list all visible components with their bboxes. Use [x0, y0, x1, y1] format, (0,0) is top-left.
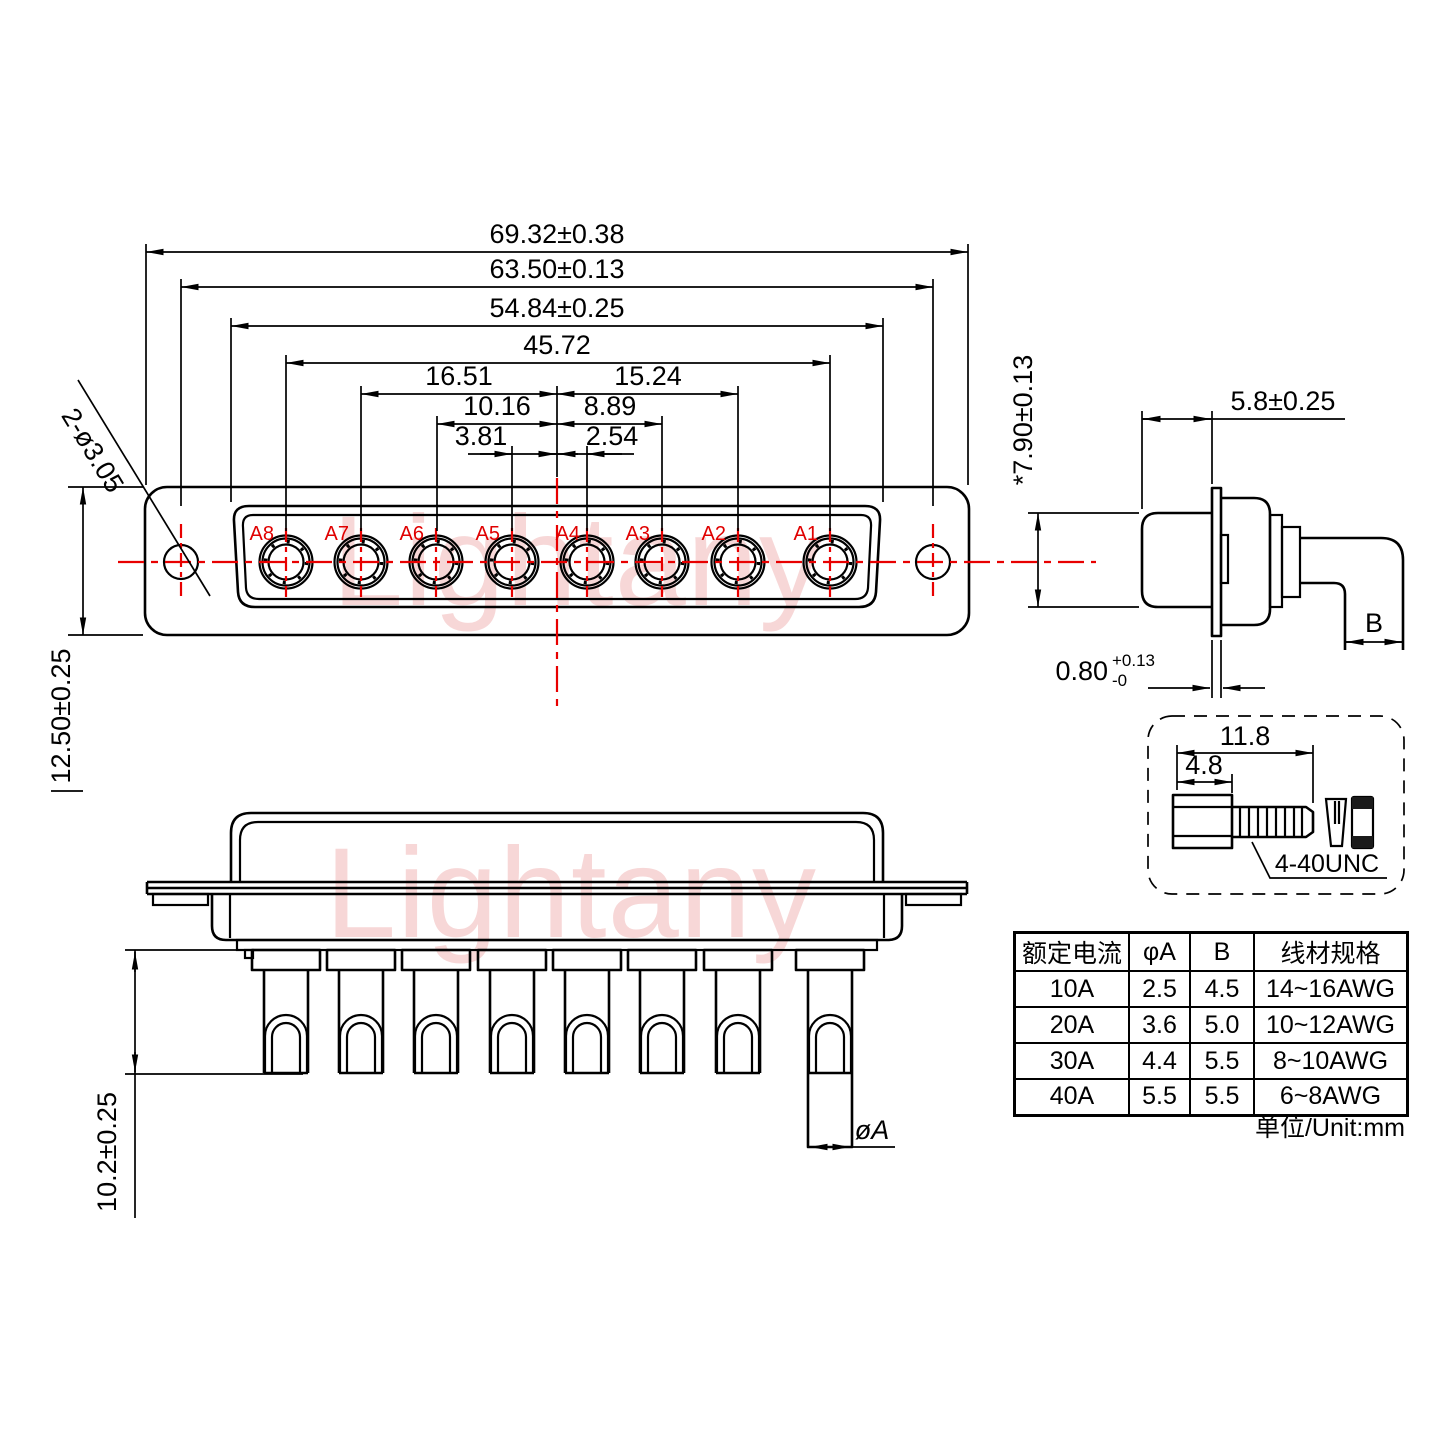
dim-flange-thickness: 0.80: [1055, 656, 1108, 686]
screw-shank: [1232, 807, 1313, 837]
dim-mount-holes: 2-ø3.05: [56, 403, 130, 498]
bottom-pin-a1: [796, 950, 864, 1073]
table-row: 10A 2.5 4.5 14~16AWG: [1015, 971, 1408, 1007]
pin-label-a5: A5: [476, 523, 500, 545]
dim-screw-length: 11.8: [1220, 721, 1271, 751]
technical-drawing-page: Lightany Lightany A8 A7 A6: [0, 0, 1440, 1440]
bottom-pin-a4: [553, 950, 621, 1073]
side-mating-body: [1142, 513, 1212, 607]
dim-cutout-width: 54.84±0.25: [490, 293, 625, 323]
table-cell: 30A: [1015, 1043, 1130, 1079]
pin-label-a6: A6: [400, 523, 424, 545]
dim-a5-center: 3.81: [455, 421, 508, 451]
header-b: B: [1190, 933, 1254, 972]
table-row: 20A 3.6 5.0 10~12AWG: [1015, 1007, 1408, 1043]
dim-wire-b: B: [1365, 608, 1383, 638]
bottom-pin-a3: [628, 950, 696, 1073]
side-view: 5.8±0.25 *7.90±0.13 0.80 +0.13 -0 B: [1008, 355, 1403, 698]
screw-end-band-bottom: [1352, 836, 1373, 848]
unit-note: 单位/Unit:mm: [1255, 1108, 1405, 1144]
dim-screw-head: 4.8: [1185, 750, 1223, 780]
side-insert-edge: [1221, 535, 1228, 583]
screw-head-facets: [1173, 807, 1232, 836]
table-cell: 20A: [1015, 1007, 1130, 1043]
bottom-dimension-lines: [135, 950, 895, 1218]
pin-label-a4: A4: [556, 523, 580, 545]
dim-pin-diameter: øA: [855, 1115, 890, 1145]
screw-thread-label: 4-40UNC: [1275, 850, 1379, 878]
dim-face-height: *7.90±0.13: [1008, 355, 1038, 485]
bottom-pin-a5: [478, 950, 546, 1073]
dim-flange-height: 12.50±0.25: [46, 649, 76, 784]
pin-label-a8: A8: [250, 523, 274, 545]
side-step2: [1282, 527, 1300, 597]
dim-contact-span: 45.72: [523, 330, 591, 360]
dim-a4-center: 2.54: [586, 421, 639, 451]
bottom-pin-a7: [327, 950, 395, 1073]
bottom-tab-right: [906, 894, 961, 905]
bottom-tab-left: [153, 894, 208, 905]
screw-slot-wedge: [1326, 799, 1346, 846]
table-cell: 5.5: [1129, 1079, 1190, 1115]
bottom-pin-a1-extension: [808, 1073, 852, 1147]
table-row: 30A 4.4 5.5 8~10AWG: [1015, 1043, 1408, 1079]
bottom-pin-a8: [252, 950, 320, 1073]
pin-label-a1: A1: [794, 523, 818, 545]
screw-head: [1173, 795, 1232, 848]
dim-flange-tol-upper: +0.13: [1112, 651, 1155, 670]
bottom-pin-a6: [402, 950, 470, 1073]
pin-label-a7: A7: [325, 523, 349, 545]
table-cell: 40A: [1015, 1079, 1130, 1115]
side-wire-outer: [1300, 538, 1403, 650]
pin-label-a2: A2: [702, 523, 726, 545]
screw-threads: [1240, 808, 1302, 836]
front-view: A8 A7 A6 A5 A4 A3 A2 A1: [46, 219, 1096, 791]
bottom-extension-lines: [125, 950, 303, 1074]
dim-a7-center: 16.51: [425, 361, 493, 391]
table-cell: 5.5: [1190, 1079, 1254, 1115]
dim-flange-tol-lower: -0: [1112, 671, 1127, 690]
table-cell: 3.6: [1129, 1007, 1190, 1043]
table-cell: 4.5: [1190, 971, 1254, 1007]
dim-a2-center: 15.24: [614, 361, 682, 391]
dim-a3-center: 8.89: [584, 391, 637, 421]
screw-detail: 11.8 4.8 4-40UNC: [1148, 716, 1404, 894]
table-cell: 5.5: [1190, 1043, 1254, 1079]
spec-table: 额定电流 φA B 线材规格 10A 2.5 4.5 14~16AWG 20A …: [1013, 931, 1409, 1117]
side-step1: [1270, 515, 1282, 607]
side-wire-inner: [1300, 583, 1345, 650]
header-rated-current: 额定电流: [1015, 933, 1130, 972]
dim-a6-center: 10.16: [463, 391, 531, 421]
drawing-canvas: Lightany Lightany A8 A7 A6: [0, 0, 1440, 1440]
table-cell: 10~12AWG: [1254, 1007, 1408, 1043]
dim-overall-width: 69.32±0.38: [490, 219, 625, 249]
pin-label-a3: A3: [626, 523, 650, 545]
table-cell: 10A: [1015, 971, 1130, 1007]
header-phi-a: φA: [1129, 933, 1190, 972]
dim-hole-span: 63.50±0.13: [490, 254, 625, 284]
table-cell: 8~10AWG: [1254, 1043, 1408, 1079]
spec-table-header-row: 额定电流 φA B 线材规格: [1015, 933, 1408, 972]
table-cell: 2.5: [1129, 971, 1190, 1007]
screw-end-band-top: [1352, 797, 1373, 809]
table-cell: 4.4: [1129, 1043, 1190, 1079]
table-cell: 5.0: [1190, 1007, 1254, 1043]
dim-pin-length: 10.2±0.25: [92, 1092, 122, 1212]
side-flange: [1212, 488, 1221, 636]
bottom-pin-a2: [704, 950, 772, 1073]
header-wire-spec: 线材规格: [1254, 933, 1408, 972]
table-cell: 14~16AWG: [1254, 971, 1408, 1007]
dim-mating-depth: 5.8±0.25: [1231, 386, 1336, 416]
